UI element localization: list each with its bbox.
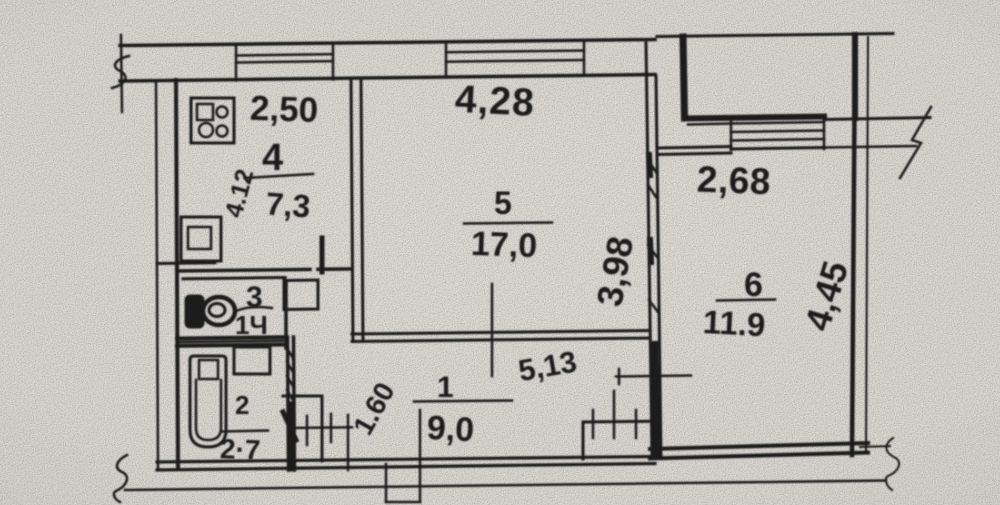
svg-text:6: 6 bbox=[744, 266, 763, 304]
svg-text:4,28: 4,28 bbox=[454, 78, 536, 125]
svg-text:1: 1 bbox=[437, 371, 454, 404]
svg-text:7,3: 7,3 bbox=[265, 185, 312, 224]
svg-text:5: 5 bbox=[494, 185, 512, 221]
svg-text:2: 2 bbox=[235, 390, 249, 420]
svg-text:4: 4 bbox=[262, 137, 283, 179]
svg-text:2·7: 2·7 bbox=[219, 433, 261, 465]
svg-text:17,0: 17,0 bbox=[470, 225, 537, 265]
svg-text:9,0: 9,0 bbox=[426, 409, 475, 449]
svg-text:11.9: 11.9 bbox=[702, 303, 766, 343]
svg-text:2,50: 2,50 bbox=[249, 89, 318, 130]
svg-text:1Ч: 1Ч bbox=[235, 310, 268, 340]
svg-text:2,68: 2,68 bbox=[696, 159, 771, 203]
